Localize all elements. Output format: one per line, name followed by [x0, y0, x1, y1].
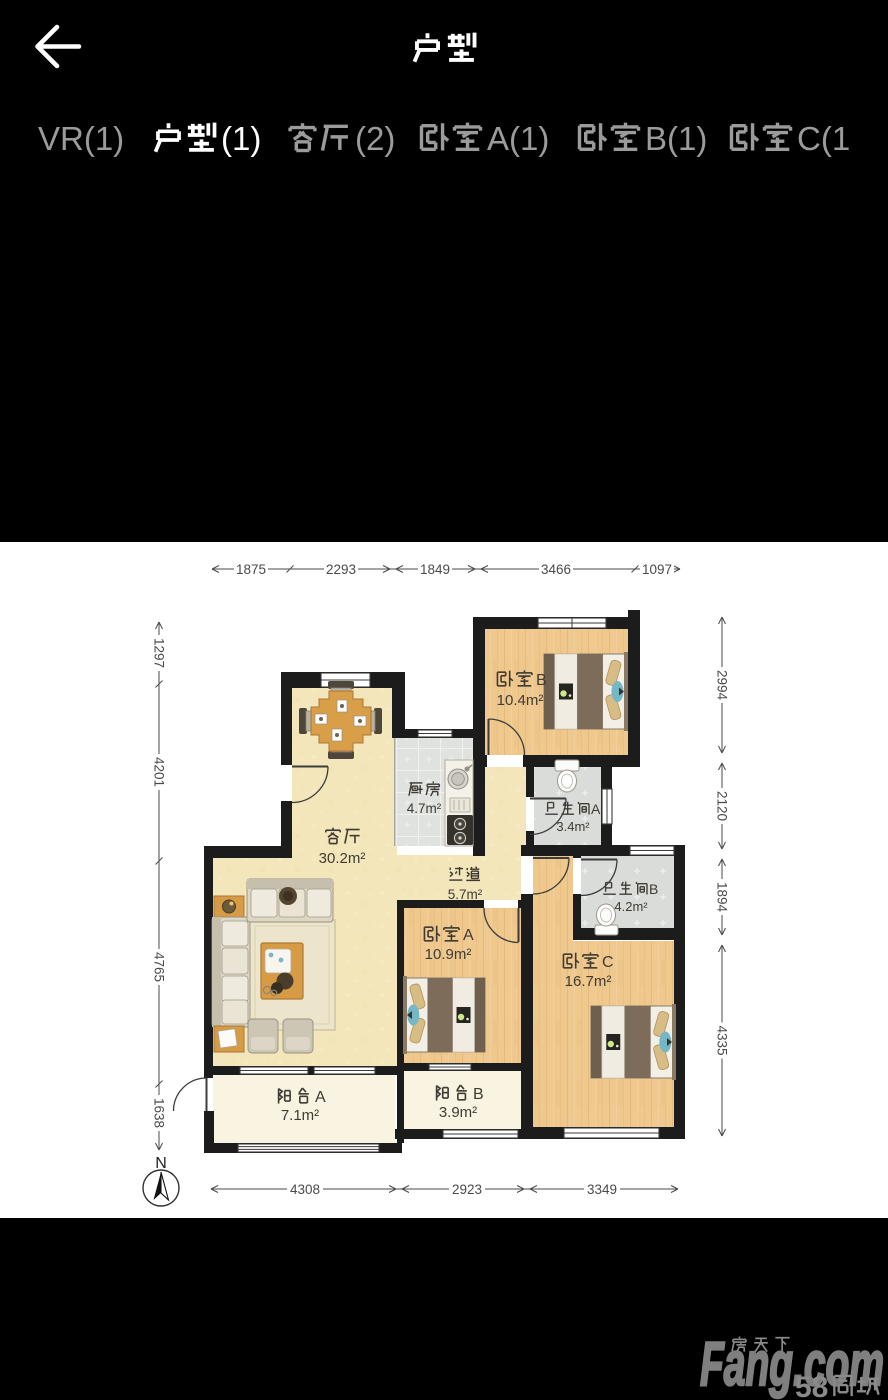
svg-text:5.7m²: 5.7m²: [448, 887, 483, 902]
svg-text:1849: 1849: [420, 562, 450, 577]
svg-text:4765: 4765: [152, 952, 167, 982]
svg-text:(2): (2): [355, 120, 395, 157]
svg-text:A: A: [315, 1089, 326, 1106]
svg-text:3466: 3466: [541, 562, 571, 577]
svg-text:A(1): A(1): [487, 120, 549, 157]
svg-text:1894: 1894: [715, 882, 730, 913]
svg-text:2923: 2923: [452, 1182, 482, 1197]
svg-text:VR(1): VR(1): [38, 120, 124, 157]
svg-text:B(1): B(1): [645, 120, 707, 157]
svg-text:C: C: [602, 954, 614, 971]
svg-text:1638: 1638: [152, 1098, 167, 1128]
svg-text:2994: 2994: [715, 670, 730, 701]
svg-text:4.7m²: 4.7m²: [407, 801, 442, 816]
svg-text:7.1m²: 7.1m²: [281, 1107, 319, 1124]
svg-text:Fang.com: Fang.com: [700, 1330, 884, 1399]
svg-text:3.9m²: 3.9m²: [439, 1104, 477, 1121]
svg-text:3349: 3349: [587, 1182, 617, 1197]
svg-text:2120: 2120: [715, 791, 730, 821]
svg-text:1875: 1875: [236, 562, 266, 577]
svg-text:B: B: [536, 672, 547, 689]
svg-text:4335: 4335: [715, 1025, 730, 1055]
svg-text:(1): (1): [221, 120, 261, 157]
svg-text:1097: 1097: [642, 562, 672, 577]
svg-text:4201: 4201: [152, 757, 167, 787]
svg-text:58: 58: [795, 1371, 828, 1400]
svg-text:A: A: [591, 801, 601, 817]
svg-text:A: A: [463, 927, 474, 944]
svg-text:30.2m²: 30.2m²: [319, 850, 366, 867]
svg-text:4.2m²: 4.2m²: [614, 899, 648, 914]
svg-text:B: B: [649, 881, 658, 897]
svg-text:1297: 1297: [152, 638, 167, 668]
svg-text:3.4m²: 3.4m²: [556, 819, 590, 834]
svg-text:C(1: C(1: [797, 120, 850, 157]
svg-text:16.7m²: 16.7m²: [565, 973, 612, 990]
svg-text:2293: 2293: [326, 562, 356, 577]
svg-text:10.9m²: 10.9m²: [425, 946, 472, 963]
svg-text:B: B: [473, 1086, 484, 1103]
svg-text:4308: 4308: [290, 1182, 320, 1197]
svg-text:10.4m²: 10.4m²: [497, 692, 544, 709]
